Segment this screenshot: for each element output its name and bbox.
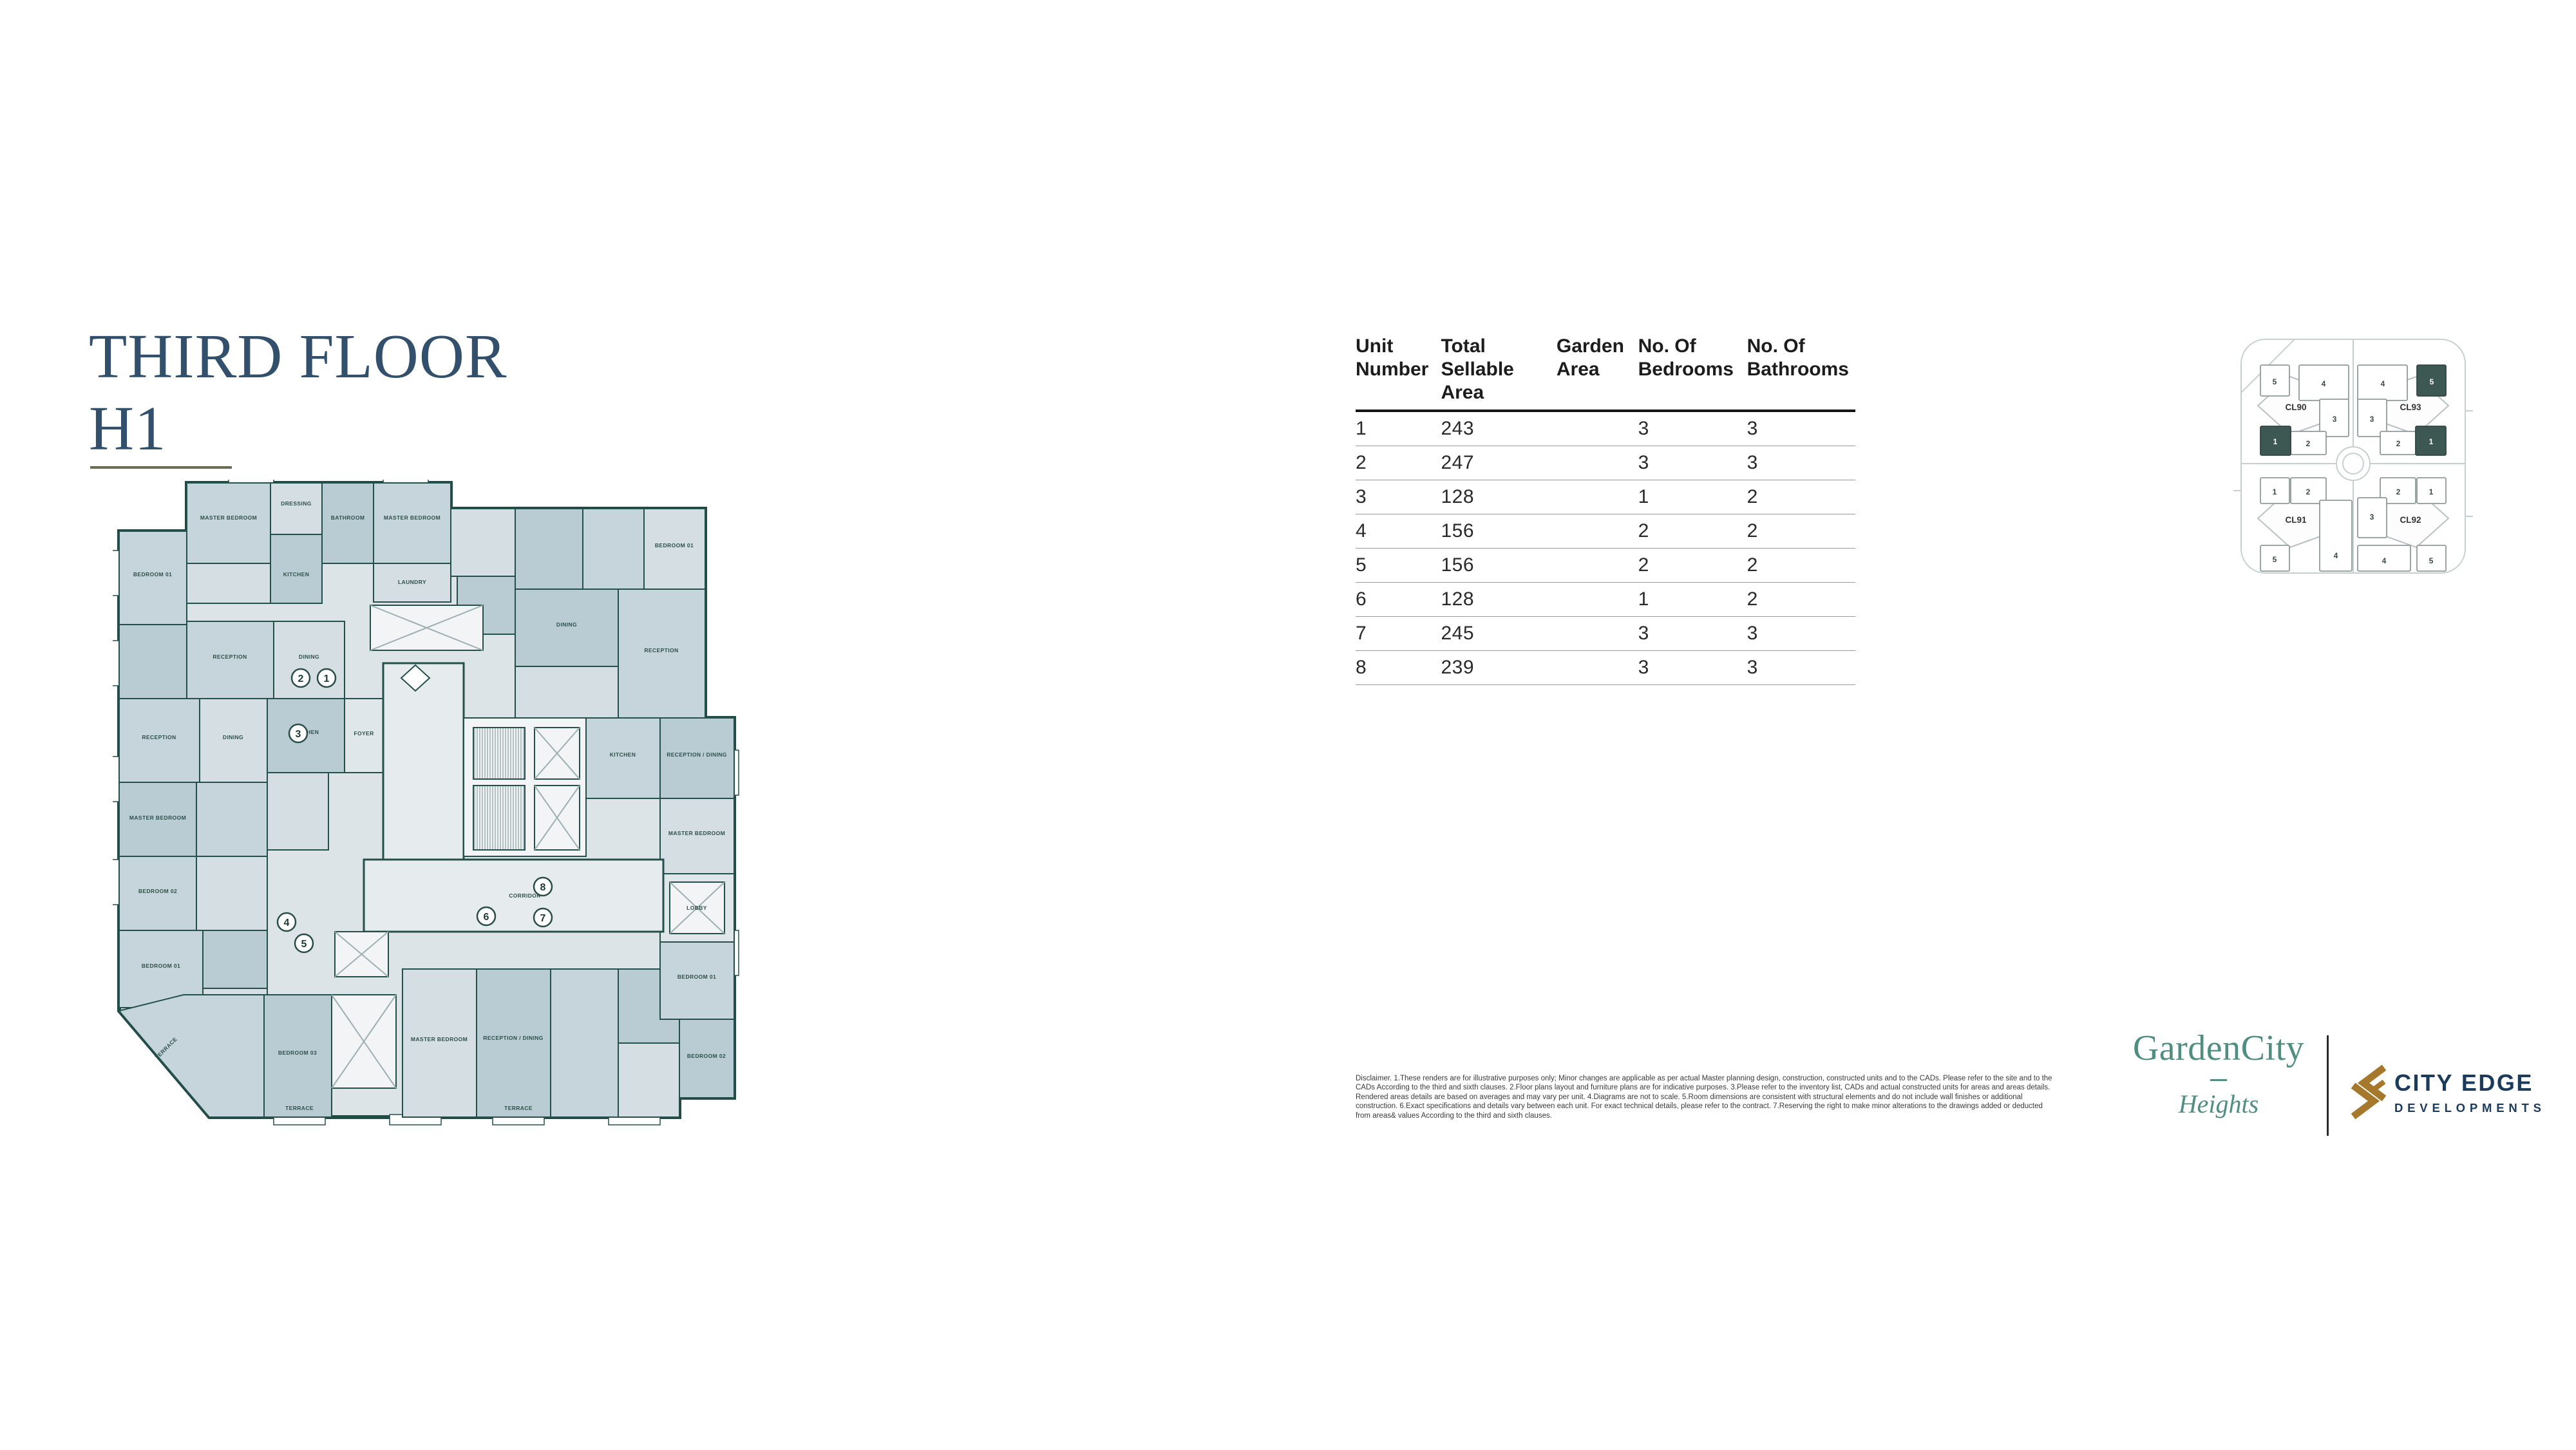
table-cell — [1557, 549, 1638, 583]
svg-text:LAUNDRY: LAUNDRY — [398, 579, 426, 585]
svg-text:1: 1 — [2273, 487, 2277, 496]
table-cell — [1557, 480, 1638, 514]
svg-text:3: 3 — [2370, 415, 2374, 424]
gardencity-heights-logo: GardenCity Heights — [2128, 1028, 2309, 1119]
table-cell: 2 — [1747, 583, 1855, 617]
unit-marker-7: 7 — [534, 909, 552, 927]
table-cell: 6 — [1356, 583, 1441, 617]
svg-text:2: 2 — [2306, 487, 2311, 496]
svg-text:BEDROOM 01: BEDROOM 01 — [677, 974, 716, 980]
table-cell: 3 — [1747, 411, 1855, 446]
column-header: No. Of Bathrooms — [1747, 335, 1855, 411]
table-cell: 3 — [1638, 651, 1747, 685]
svg-text:MASTER BEDROOM: MASTER BEDROOM — [411, 1036, 468, 1042]
table-cell — [1557, 583, 1638, 617]
svg-text:1: 1 — [2429, 487, 2434, 496]
table-cell: 5 — [1356, 549, 1441, 583]
unit-marker-3: 3 — [289, 724, 307, 742]
table-cell: 7 — [1356, 617, 1441, 651]
table-cell: 128 — [1441, 480, 1556, 514]
gardencity-sub-wordmark: Heights — [2128, 1089, 2309, 1119]
svg-text:2: 2 — [298, 673, 304, 684]
title-underline-decoration — [90, 466, 232, 469]
svg-text:DINING: DINING — [223, 734, 243, 740]
svg-text:TERRACE: TERRACE — [504, 1105, 533, 1111]
table-cell: 8 — [1356, 651, 1441, 685]
svg-text:BEDROOM 01: BEDROOM 01 — [133, 571, 172, 578]
units-table-body: 1 243 3 3 2 247 3 3 3 128 1 2 4 — [1356, 411, 1855, 685]
table-cell: 3 — [1638, 446, 1747, 480]
cluster-cl91: CL91 1 2 5 4 — [2258, 478, 2352, 571]
svg-text:DINING: DINING — [556, 621, 577, 628]
table-cell: 247 — [1441, 446, 1556, 480]
svg-text:DRESSING: DRESSING — [281, 500, 312, 507]
cluster-cl92: CL92 2 1 3 4 5 — [2358, 478, 2448, 571]
svg-text:BATHROOM: BATHROOM — [331, 514, 365, 521]
svg-text:RECEPTION / DINING: RECEPTION / DINING — [667, 751, 727, 758]
table-cell: 4 — [1356, 514, 1441, 549]
svg-text:MASTER BEDROOM: MASTER BEDROOM — [668, 830, 725, 836]
table-row: 1 243 3 3 — [1356, 411, 1855, 446]
table-header-row: Unit Number Total Sellable Area Garden A… — [1356, 335, 1855, 411]
table-cell — [1557, 446, 1638, 480]
cluster-cl93: CL93 4 5 3 2 1 — [2358, 365, 2448, 455]
svg-text:RECEPTION: RECEPTION — [644, 647, 678, 654]
page-title-line1: THIRD FLOOR — [89, 321, 507, 393]
svg-text:3: 3 — [2333, 415, 2337, 424]
table-cell: 3 — [1356, 480, 1441, 514]
column-header: No. Of Bedrooms — [1638, 335, 1747, 411]
svg-text:LOBBY: LOBBY — [687, 905, 707, 911]
svg-text:1: 1 — [2273, 437, 2278, 446]
table-row: 4 156 2 2 — [1356, 514, 1855, 549]
table-cell: 156 — [1441, 514, 1556, 549]
svg-text:4: 4 — [2382, 556, 2387, 565]
table-cell: 3 — [1638, 617, 1747, 651]
table-cell: 2 — [1638, 549, 1747, 583]
svg-text:RECEPTION / DINING: RECEPTION / DINING — [483, 1035, 544, 1041]
svg-text:1: 1 — [324, 673, 330, 684]
table-row: 8 239 3 3 — [1356, 651, 1855, 685]
table-row: 3 128 1 2 — [1356, 480, 1855, 514]
city-edge-logo-icon — [2349, 1064, 2387, 1120]
table-cell: 1 — [1638, 583, 1747, 617]
table-cell: 2 — [1638, 514, 1747, 549]
svg-text:BEDROOM 01: BEDROOM 01 — [142, 963, 180, 969]
gardencity-dash-divider — [2210, 1079, 2227, 1081]
svg-text:5: 5 — [301, 939, 307, 950]
city-edge-logo: CITY EDGE DEVELOPMENTS — [2349, 1064, 2546, 1120]
cluster-label: CL90 — [2285, 402, 2306, 412]
svg-text:4: 4 — [2381, 379, 2385, 388]
svg-text:2: 2 — [2396, 487, 2401, 496]
svg-text:7: 7 — [540, 913, 546, 924]
table-cell: 1 — [1638, 480, 1747, 514]
svg-text:BEDROOM 01: BEDROOM 01 — [655, 542, 694, 549]
table-cell: 156 — [1441, 549, 1556, 583]
cluster-label: CL93 — [2400, 402, 2421, 412]
svg-text:RECEPTION: RECEPTION — [213, 654, 247, 660]
column-header: Garden Area — [1557, 335, 1638, 411]
table-cell: 3 — [1747, 446, 1855, 480]
table-cell — [1557, 411, 1638, 446]
city-edge-name: CITY EDGE — [2394, 1069, 2546, 1097]
svg-text:MASTER BEDROOM: MASTER BEDROOM — [384, 514, 440, 521]
table-cell: 3 — [1747, 651, 1855, 685]
svg-text:BEDROOM 03: BEDROOM 03 — [278, 1050, 317, 1056]
site-location-map: CL90 5 4 3 2 1 CL93 4 5 3 2 1 — [2233, 332, 2473, 584]
table-cell — [1557, 651, 1638, 685]
svg-text:DINING: DINING — [299, 654, 319, 660]
svg-text:1: 1 — [2429, 437, 2434, 446]
city-edge-wordmark: CITY EDGE DEVELOPMENTS — [2394, 1069, 2546, 1115]
table-row: 6 128 1 2 — [1356, 583, 1855, 617]
svg-text:5: 5 — [2429, 556, 2434, 565]
table-cell — [1557, 617, 1638, 651]
table-cell: 3 — [1747, 617, 1855, 651]
table-cell: 2 — [1747, 549, 1855, 583]
city-edge-subtitle: DEVELOPMENTS — [2394, 1101, 2546, 1115]
units-table-header: Unit Number Total Sellable Area Garden A… — [1356, 335, 1855, 411]
svg-text:4: 4 — [284, 918, 290, 928]
table-cell: 2 — [1747, 480, 1855, 514]
svg-text:6: 6 — [484, 912, 489, 923]
unit-marker-1: 1 — [317, 669, 336, 687]
floor-plan: MASTER BEDROOM DRESSING BATHROOM MASTER … — [113, 480, 741, 1136]
svg-text:2: 2 — [2306, 439, 2311, 448]
cluster-label: CL92 — [2400, 515, 2421, 525]
table-cell: 243 — [1441, 411, 1556, 446]
page-title: THIRD FLOOR H1 — [89, 321, 507, 465]
cluster-label: CL91 — [2285, 515, 2307, 525]
svg-text:5: 5 — [2273, 555, 2277, 564]
page-title-line2: H1 — [89, 393, 507, 465]
svg-text:2: 2 — [2396, 439, 2401, 448]
unit-marker-8: 8 — [534, 878, 552, 896]
table-cell: 2 — [1356, 446, 1441, 480]
svg-text:RECEPTION: RECEPTION — [142, 734, 176, 740]
svg-text:FOYER: FOYER — [354, 730, 374, 737]
unit-marker-4: 4 — [278, 913, 296, 931]
units-table: Unit Number Total Sellable Area Garden A… — [1356, 335, 1855, 685]
table-cell: 1 — [1356, 411, 1441, 446]
svg-text:4: 4 — [2334, 551, 2338, 560]
svg-text:BEDROOM 02: BEDROOM 02 — [138, 888, 177, 894]
svg-text:3: 3 — [2370, 513, 2374, 522]
svg-text:MASTER BEDROOM: MASTER BEDROOM — [200, 514, 257, 521]
column-header: Total Sellable Area — [1441, 335, 1556, 411]
svg-text:3: 3 — [296, 729, 301, 740]
svg-text:4: 4 — [2322, 379, 2326, 388]
disclaimer-text: Disclaimer. 1.These renders are for illu… — [1356, 1074, 2059, 1121]
svg-text:MASTER BEDROOM: MASTER BEDROOM — [129, 814, 186, 821]
svg-text:5: 5 — [2273, 377, 2277, 386]
svg-text:8: 8 — [540, 882, 546, 893]
brochure-page: THIRD FLOOR H1 — [0, 0, 2576, 1450]
table-cell: 239 — [1441, 651, 1556, 685]
table-cell: 3 — [1638, 411, 1747, 446]
table-cell: 245 — [1441, 617, 1556, 651]
svg-text:5: 5 — [2430, 377, 2434, 386]
table-cell — [1557, 514, 1638, 549]
table-row: 7 245 3 3 — [1356, 617, 1855, 651]
unit-marker-5: 5 — [295, 934, 313, 952]
table-row: 5 156 2 2 — [1356, 549, 1855, 583]
table-cell: 2 — [1747, 514, 1855, 549]
building — [2320, 500, 2352, 571]
unit-marker-2: 2 — [292, 669, 310, 687]
unit-marker-6: 6 — [477, 907, 495, 925]
svg-text:TERRACE: TERRACE — [285, 1105, 314, 1111]
svg-text:BEDROOM 02: BEDROOM 02 — [687, 1053, 726, 1059]
cluster-cl90: CL90 5 4 3 2 1 — [2258, 365, 2349, 455]
svg-text:KITCHEN: KITCHEN — [610, 751, 636, 758]
column-header: Unit Number — [1356, 335, 1441, 411]
svg-text:KITCHEN: KITCHEN — [283, 571, 310, 578]
gardencity-wordmark: GardenCity — [2128, 1028, 2309, 1069]
table-row: 2 247 3 3 — [1356, 446, 1855, 480]
logo-divider-line — [2327, 1035, 2329, 1136]
table-cell: 128 — [1441, 583, 1556, 617]
